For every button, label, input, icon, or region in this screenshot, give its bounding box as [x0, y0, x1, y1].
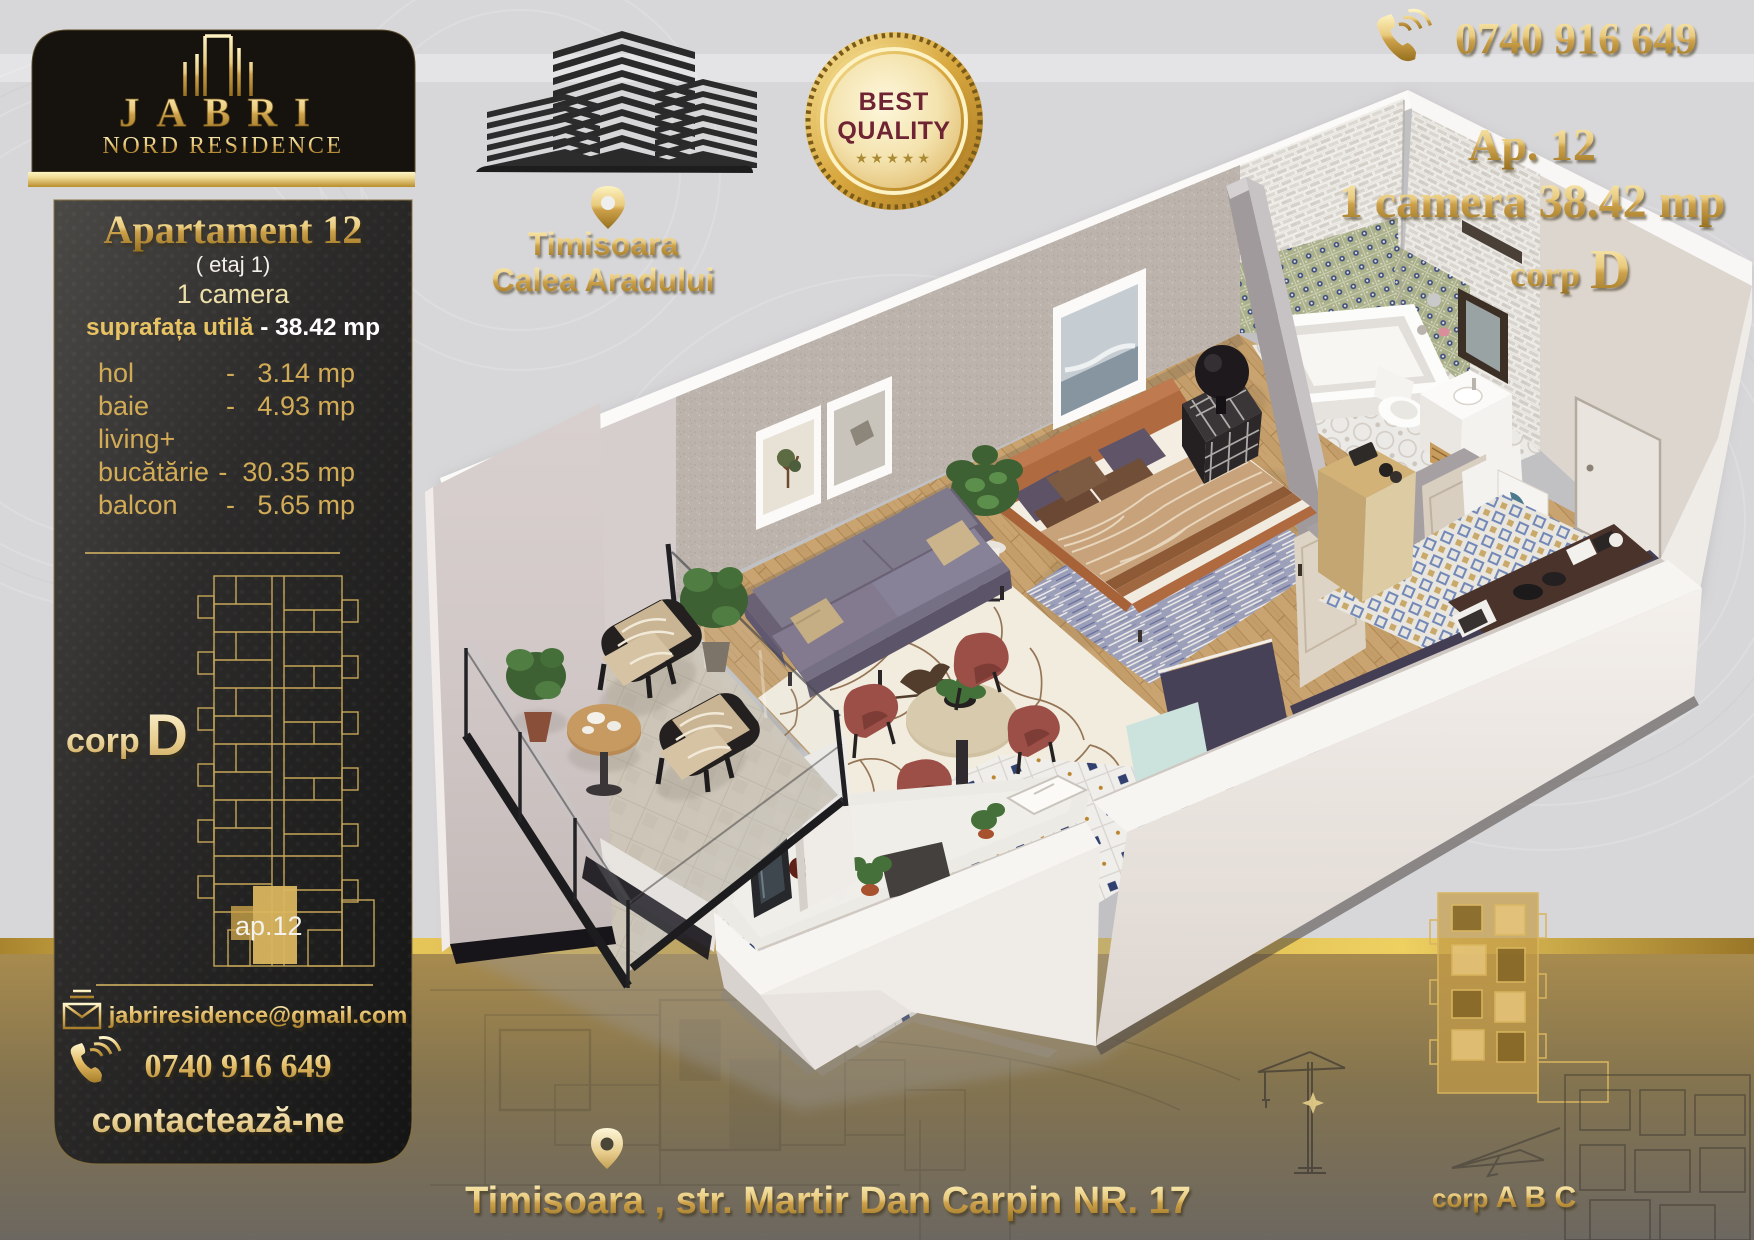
svg-text:bucătărie: bucătărie — [98, 457, 209, 487]
svg-text:D: D — [1590, 239, 1630, 301]
svg-text:corp: corp — [1510, 254, 1580, 294]
svg-text:D: D — [146, 703, 188, 768]
svg-text:- 30.35 mp: - 30.35 mp — [218, 457, 355, 487]
svg-text:NORD RESIDENCE: NORD RESIDENCE — [102, 133, 343, 159]
svg-text:0740 916 649: 0740 916 649 — [145, 1048, 332, 1085]
svg-text:living+: living+ — [98, 424, 175, 454]
svg-text:Timisoara: Timisoara — [528, 226, 679, 262]
svg-text:0740 916 649: 0740 916 649 — [1455, 14, 1697, 63]
svg-text:QUALITY: QUALITY — [837, 117, 950, 145]
svg-text:Timisoara , str. Martir Dan Ca: Timisoara , str. Martir Dan Carpin NR. 1… — [465, 1180, 1191, 1222]
svg-text:jabriresidence@gmail.com: jabriresidence@gmail.com — [108, 1002, 408, 1028]
svg-text:Apartament 12: Apartament 12 — [104, 207, 363, 252]
svg-text:ap.12: ap.12 — [235, 911, 303, 941]
svg-text:Ap. 12: Ap. 12 — [1468, 119, 1596, 170]
svg-text:Calea Aradului: Calea Aradului — [492, 262, 715, 298]
svg-text:( etaj 1): ( etaj 1) — [196, 252, 271, 277]
svg-text:baie: baie — [98, 391, 149, 421]
svg-text:BEST: BEST — [859, 88, 930, 116]
svg-text:- 3.14 mp: - 3.14 mp — [226, 358, 355, 388]
svg-text:balcon: balcon — [98, 490, 178, 520]
svg-text:contactează-ne: contactează-ne — [92, 1101, 345, 1140]
svg-text:JABRI: JABRI — [119, 89, 327, 135]
svg-text:corp A B C: corp A B C — [1432, 1181, 1576, 1214]
svg-text:1 camera 38.42 mp: 1 camera 38.42 mp — [1339, 175, 1726, 228]
svg-text:suprafața utilă - 38.42 mp: suprafața utilă - 38.42 mp — [86, 314, 380, 341]
svg-text:hol: hol — [98, 358, 134, 388]
svg-text:corp: corp — [66, 722, 140, 760]
svg-text:- 4.93 mp: - 4.93 mp — [226, 391, 355, 421]
svg-text:- 5.65 mp: - 5.65 mp — [226, 490, 355, 520]
svg-text:1 camera: 1 camera — [177, 279, 291, 309]
svg-text:★★★★★: ★★★★★ — [855, 150, 933, 166]
